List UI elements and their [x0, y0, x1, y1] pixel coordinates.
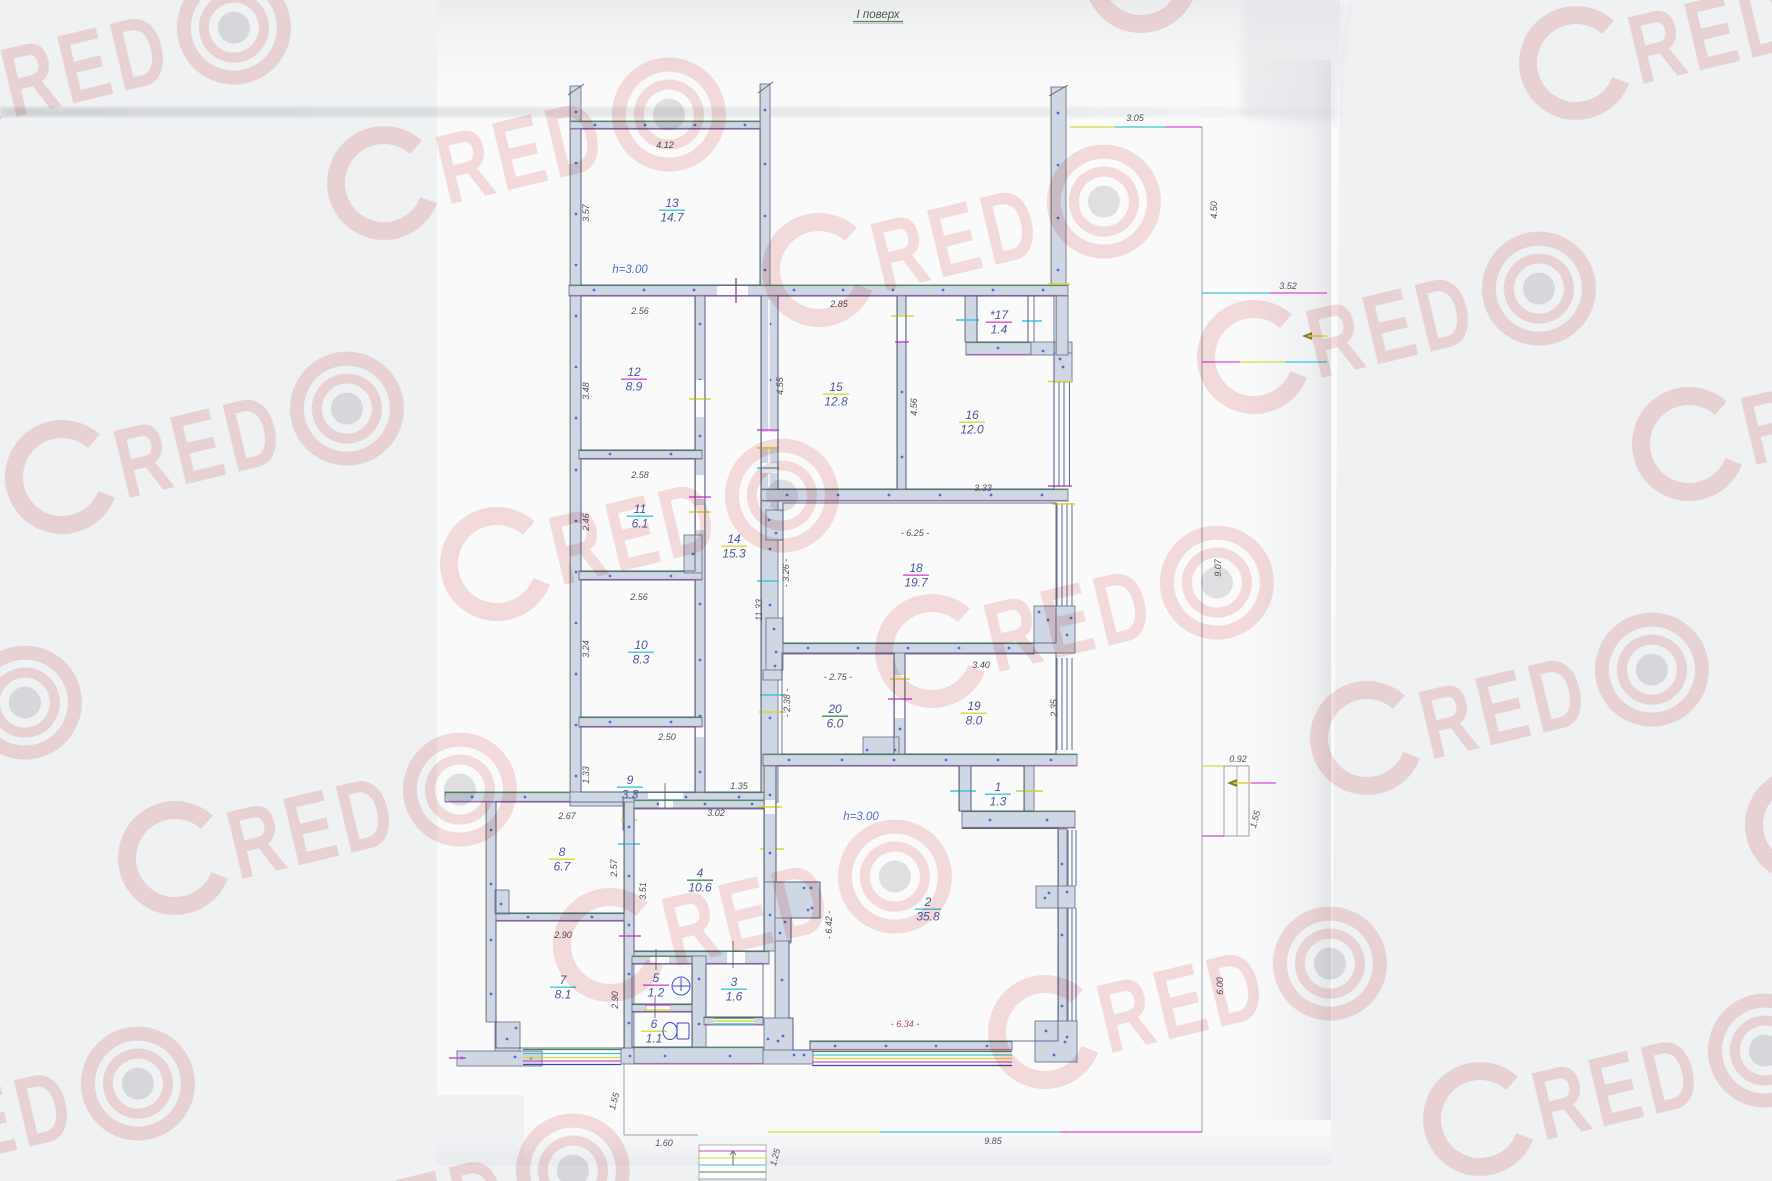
svg-text:3.02: 3.02 [707, 808, 725, 818]
svg-text:20: 20 [827, 702, 842, 716]
svg-text:h=3.00: h=3.00 [843, 811, 879, 823]
svg-text:18: 18 [909, 561, 923, 575]
svg-text:0.92: 0.92 [1229, 754, 1247, 764]
svg-text:3.52: 3.52 [1279, 281, 1297, 291]
svg-text:- 3.26 -: - 3.26 - [781, 559, 791, 588]
svg-text:9: 9 [627, 773, 634, 787]
svg-text:1.3: 1.3 [990, 795, 1007, 809]
svg-text:6.0: 6.0 [827, 717, 844, 731]
svg-text:12.8: 12.8 [824, 395, 848, 409]
svg-text:4.55: 4.55 [775, 376, 785, 395]
svg-text:2.67: 2.67 [557, 811, 577, 821]
svg-text:14: 14 [727, 532, 741, 546]
svg-text:1: 1 [995, 780, 1002, 794]
svg-text:3.24: 3.24 [581, 640, 591, 658]
svg-text:*17: *17 [990, 308, 1009, 322]
svg-text:8: 8 [559, 845, 566, 859]
svg-text:1.60: 1.60 [655, 1138, 673, 1148]
svg-text:1.35: 1.35 [730, 781, 749, 791]
svg-text:16: 16 [965, 408, 979, 422]
svg-text:4.56: 4.56 [909, 398, 919, 416]
svg-text:15: 15 [829, 380, 843, 394]
svg-text:8.3: 8.3 [633, 653, 650, 667]
svg-text:h=3.00: h=3.00 [612, 264, 648, 276]
svg-text:2.57: 2.57 [609, 858, 619, 878]
svg-text:3.48: 3.48 [581, 382, 591, 400]
svg-text:1.6: 1.6 [726, 990, 743, 1004]
svg-text:8.1: 8.1 [555, 988, 572, 1002]
svg-text:4.50: 4.50 [1209, 201, 1219, 219]
svg-text:1.33: 1.33 [581, 766, 591, 784]
svg-text:1.1: 1.1 [646, 1032, 663, 1046]
svg-text:6.7: 6.7 [554, 860, 572, 874]
svg-text:1.4: 1.4 [991, 323, 1008, 337]
svg-text:14.7: 14.7 [660, 211, 685, 225]
svg-text:3: 3 [731, 975, 738, 989]
svg-text:13: 13 [665, 196, 679, 210]
svg-text:12.0: 12.0 [960, 423, 984, 437]
svg-text:- 2.75 -: - 2.75 - [824, 672, 853, 682]
svg-text:2.50: 2.50 [657, 732, 676, 742]
svg-text:3.57: 3.57 [581, 203, 591, 222]
svg-text:9.85: 9.85 [984, 1136, 1003, 1146]
svg-text:6: 6 [651, 1017, 658, 1031]
svg-text:3.05: 3.05 [1126, 113, 1145, 123]
svg-text:11.33: 11.33 [754, 599, 764, 621]
svg-text:8.0: 8.0 [966, 714, 983, 728]
svg-text:3.33: 3.33 [974, 483, 992, 493]
svg-text:1.2: 1.2 [648, 986, 665, 1000]
svg-text:10: 10 [634, 638, 648, 652]
svg-text:- 2.38 -: - 2.38 - [782, 689, 792, 718]
svg-text:- 6.25 -: - 6.25 - [901, 528, 930, 538]
svg-text:2.56: 2.56 [629, 592, 648, 602]
svg-text:12: 12 [627, 365, 641, 379]
svg-text:2.35: 2.35 [1049, 698, 1059, 718]
svg-text:8.9: 8.9 [626, 380, 643, 394]
svg-text:2.56: 2.56 [630, 306, 649, 316]
svg-text:19.7: 19.7 [904, 576, 929, 590]
svg-text:- 6.34 -: - 6.34 - [891, 1019, 920, 1029]
svg-text:19: 19 [967, 699, 981, 713]
svg-text:І поверх: І поверх [856, 9, 900, 21]
svg-text:3.3: 3.3 [622, 788, 639, 802]
